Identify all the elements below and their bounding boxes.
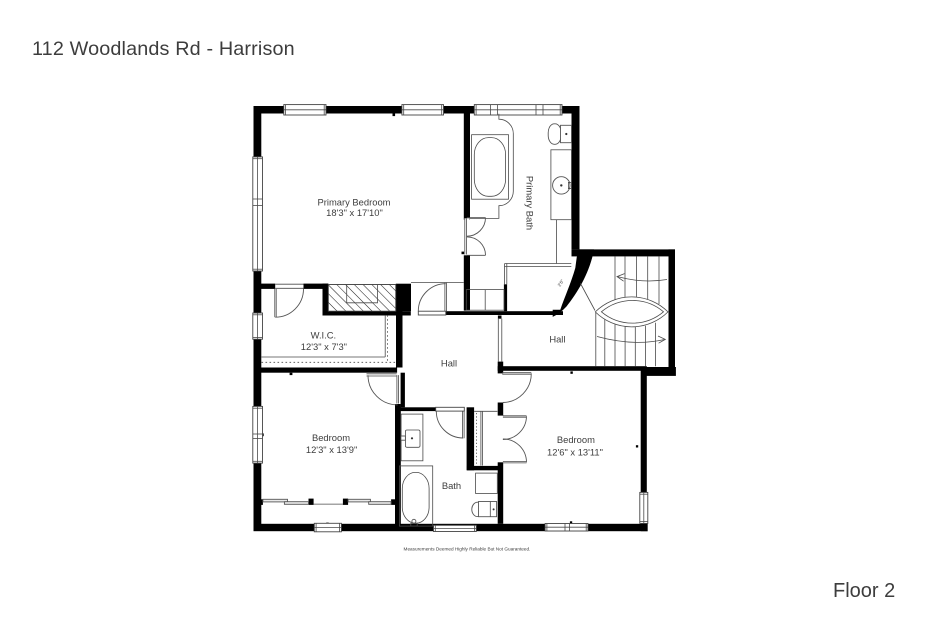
svg-text:Bedroom: Bedroom xyxy=(312,432,350,443)
svg-text:W.I.C.: W.I.C. xyxy=(311,330,337,341)
svg-text:18'3" x 17'10": 18'3" x 17'10" xyxy=(326,207,383,218)
svg-text:Primary Bath: Primary Bath xyxy=(525,176,536,230)
svg-text:Hall: Hall xyxy=(549,333,565,344)
svg-text:12'6" x 13'11": 12'6" x 13'11" xyxy=(547,447,603,458)
svg-text:12'3" x 13'9": 12'3" x 13'9" xyxy=(306,444,357,455)
svg-text:Floor 2: Floor 2 xyxy=(833,580,895,602)
svg-text:Bath: Bath xyxy=(442,480,461,491)
svg-text:Measurements Deemed Highly Rel: Measurements Deemed Highly Reliable But … xyxy=(404,547,531,552)
svg-text:12'3" x 7'3": 12'3" x 7'3" xyxy=(301,341,347,352)
svg-text:Bedroom: Bedroom xyxy=(557,434,595,445)
svg-text:112 Woodlands Rd - Harrison: 112 Woodlands Rd - Harrison xyxy=(32,38,295,60)
svg-text:Primary Bedroom: Primary Bedroom xyxy=(318,197,391,208)
svg-text:Hall: Hall xyxy=(441,357,457,368)
